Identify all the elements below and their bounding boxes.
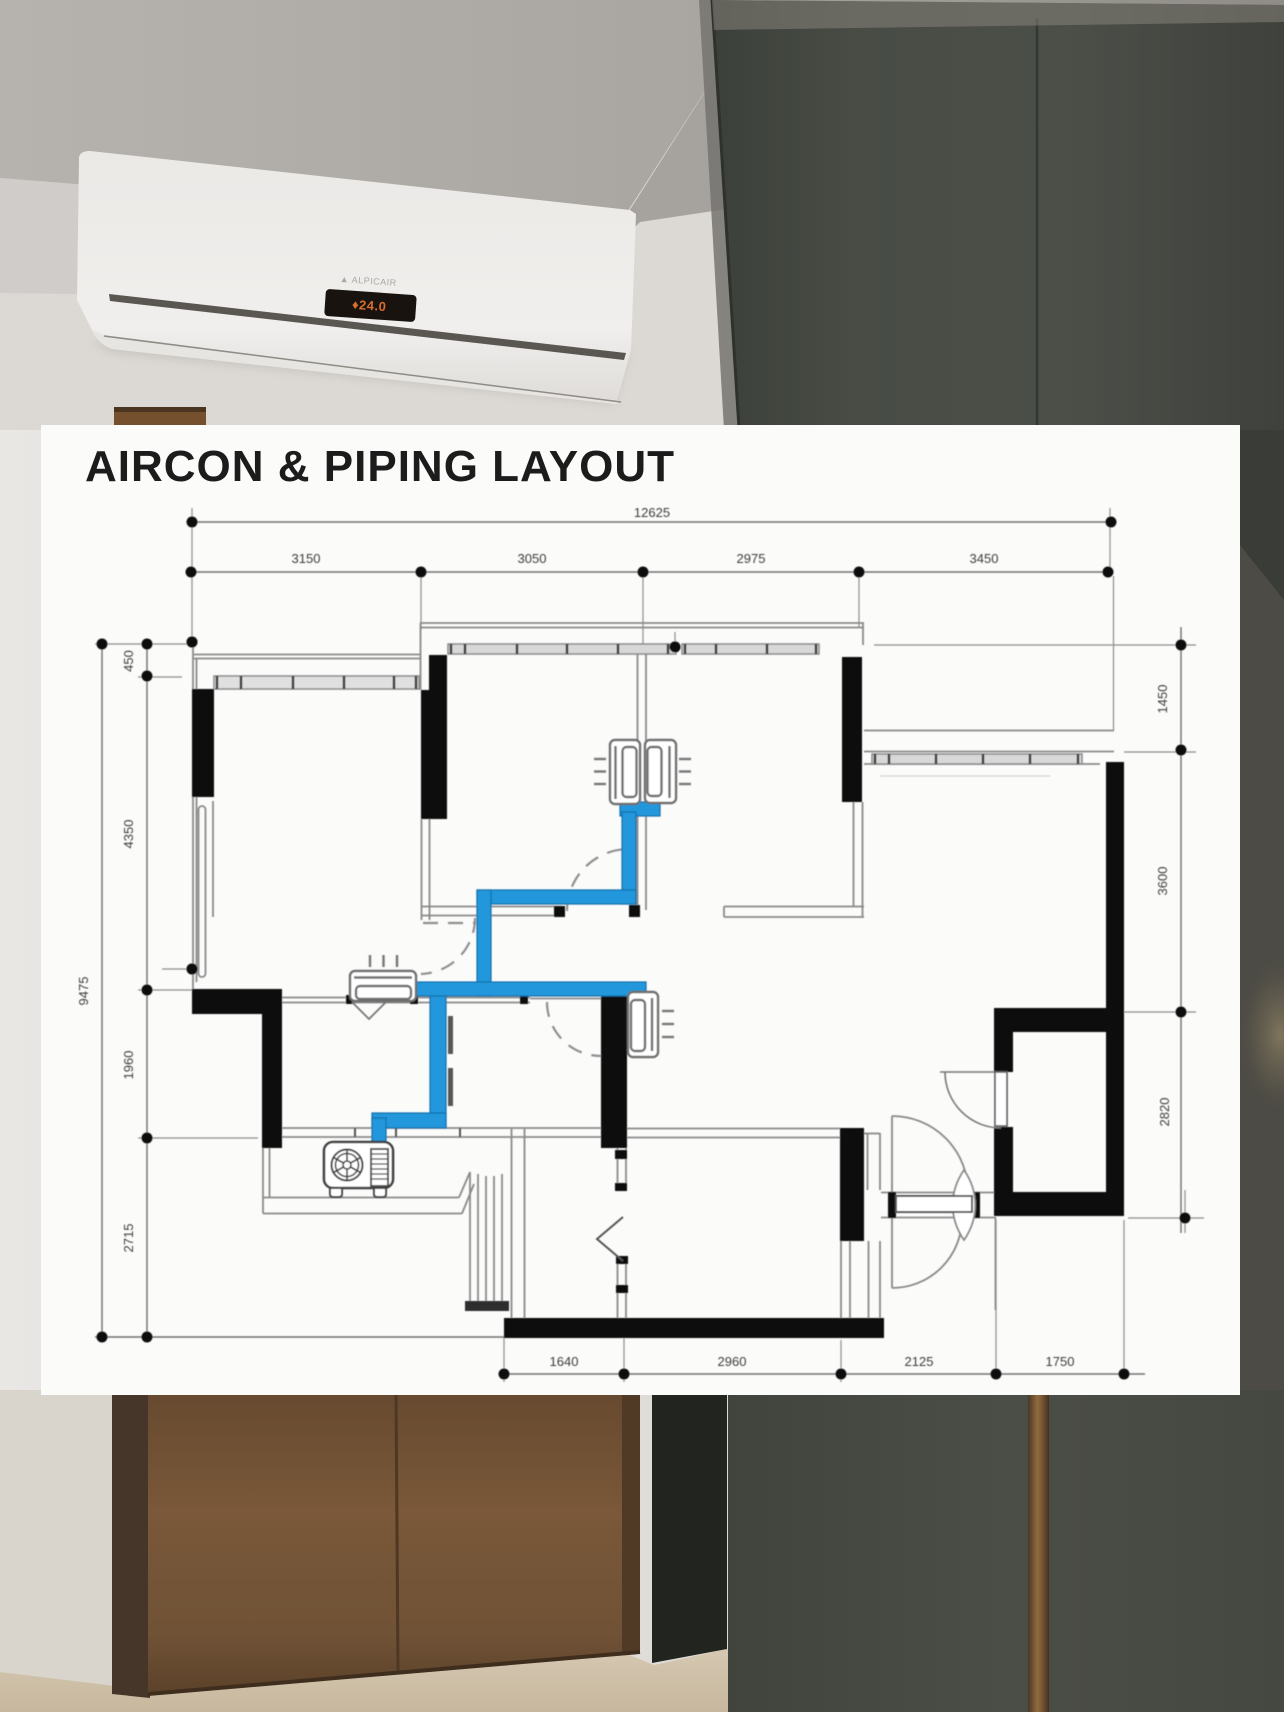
svg-text:2975: 2975 (737, 551, 766, 566)
svg-text:AIRCON & PIPING LAYOUT: AIRCON & PIPING LAYOUT (85, 442, 675, 491)
svg-text:3150: 3150 (292, 551, 321, 566)
svg-text:♦24.0: ♦24.0 (351, 297, 386, 314)
svg-text:450: 450 (121, 650, 136, 672)
svg-text:12625: 12625 (634, 505, 670, 520)
svg-text:2125: 2125 (905, 1354, 934, 1369)
svg-text:1960: 1960 (121, 1051, 136, 1080)
svg-text:1640: 1640 (550, 1354, 579, 1369)
svg-text:1750: 1750 (1046, 1354, 1075, 1369)
svg-text:1450: 1450 (1155, 685, 1170, 714)
svg-text:4350: 4350 (121, 820, 136, 849)
svg-text:3450: 3450 (970, 551, 999, 566)
svg-text:9475: 9475 (76, 977, 91, 1006)
svg-text:2960: 2960 (718, 1354, 747, 1369)
svg-text:3600: 3600 (1155, 867, 1170, 896)
svg-text:2820: 2820 (1157, 1098, 1172, 1127)
svg-text:3050: 3050 (518, 551, 547, 566)
svg-text:2715: 2715 (121, 1224, 136, 1253)
